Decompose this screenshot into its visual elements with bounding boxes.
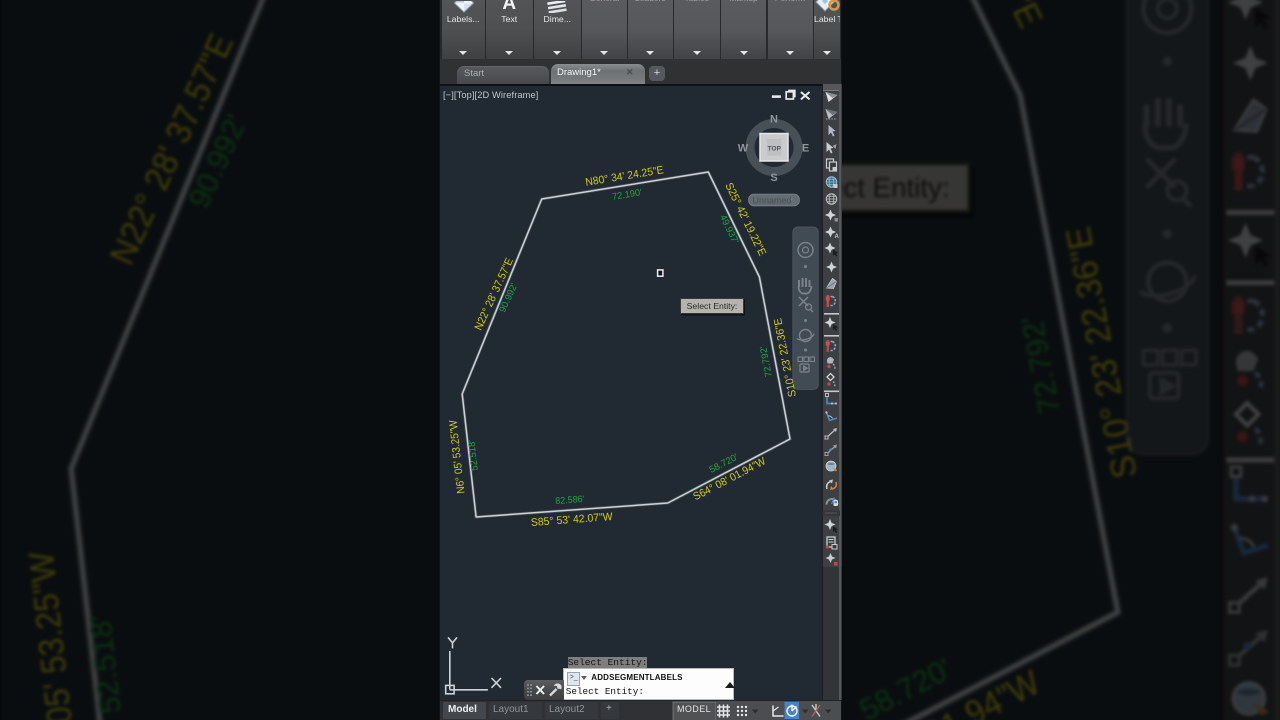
svg-text:N6° 05' 53.25"W: N6° 05' 53.25"W <box>22 549 87 720</box>
svg-text:S: S <box>770 172 777 184</box>
svg-text:52.518': 52.518' <box>466 439 480 471</box>
svg-text:N6° 05' 53.25"W: N6° 05' 53.25"W <box>447 419 467 494</box>
svg-text:S85° 53' 42.07"W: S85° 53' 42.07"W <box>530 511 613 529</box>
svg-text:Unnamed: Unnamed <box>753 196 792 206</box>
svg-text:N: N <box>770 114 778 126</box>
svg-text:TOP: TOP <box>768 146 782 153</box>
svg-text:52.518': 52.518' <box>84 613 128 715</box>
svg-text:72.792': 72.792' <box>1016 313 1067 416</box>
svg-text:W: W <box>738 143 749 155</box>
svg-text:82.586': 82.586' <box>555 494 585 507</box>
svg-text:A: A <box>835 234 840 240</box>
svg-text:E: E <box>802 143 809 155</box>
svg-text:72.190': 72.190' <box>611 187 643 203</box>
